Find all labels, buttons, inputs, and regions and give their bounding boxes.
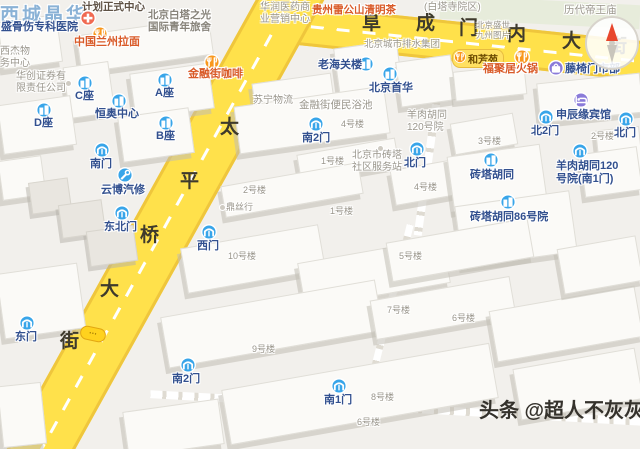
building-block <box>0 263 86 340</box>
map-label: 苏宁物流 <box>253 95 293 107</box>
gate-icon[interactable] <box>201 224 217 240</box>
building-icon[interactable] <box>36 102 52 118</box>
minor-poi-dot[interactable] <box>377 145 384 152</box>
poi-label: A座 <box>155 87 174 100</box>
building-block <box>221 343 499 445</box>
map-label: 北京城市排水集团 <box>364 39 440 50</box>
road-name-char: 大 <box>562 32 581 51</box>
poi-label: 恒奥中心 <box>95 108 139 121</box>
minor-poi-dot[interactable] <box>219 204 226 211</box>
poi-label: 羊肉胡同120号院(南1门) <box>556 160 618 185</box>
food-icon <box>454 51 466 63</box>
road-name-char: 阜 <box>362 14 381 33</box>
gate-icon[interactable] <box>180 357 196 373</box>
map-label: 华润医药商业营销中心 <box>260 2 310 26</box>
poi-label: 云博汽修 <box>101 184 145 197</box>
poi-label: 盛骨伤专科医院 <box>1 21 78 34</box>
poi-label: 南2门 <box>302 132 330 145</box>
road-name-char: 太 <box>220 118 239 137</box>
building-icon[interactable] <box>77 75 93 91</box>
building-block <box>0 382 47 448</box>
map-label: 10号楼 <box>228 251 256 262</box>
map-label: 7号楼 <box>387 305 410 316</box>
gate-icon[interactable] <box>94 142 110 158</box>
poi-label: 北京首华 <box>369 82 413 95</box>
watermark: 头条 @超人不灰灰1 <box>479 394 640 423</box>
gate-icon[interactable] <box>409 141 425 157</box>
poi-label: 北门 <box>404 157 426 170</box>
road-name-char: 成 <box>416 14 435 33</box>
poi-label: 砖塔胡同86号院 <box>470 211 548 224</box>
poi-label: 老海关楼 <box>318 59 362 72</box>
gate-icon[interactable] <box>331 378 347 394</box>
map-label: 6号楼 <box>452 313 475 324</box>
poi-label: 东门 <box>15 331 37 344</box>
map-label: 1号楼 <box>321 156 344 167</box>
building-icon[interactable] <box>500 194 516 210</box>
repair-icon[interactable] <box>117 167 133 183</box>
building-icon[interactable] <box>157 72 173 88</box>
gate-icon[interactable] <box>308 116 324 132</box>
poi-label: 北门 <box>614 127 636 140</box>
poi-label: 中国兰州拉面 <box>74 36 140 49</box>
road-name-char: 大 <box>100 280 119 299</box>
road-name-char: 平 <box>180 172 199 191</box>
map-label: 4号楼 <box>414 182 437 193</box>
map-label: 6号楼 <box>357 417 380 428</box>
map-label: 4号楼 <box>341 119 364 130</box>
hospital-icon[interactable] <box>80 10 96 26</box>
map-label: 9号楼 <box>252 344 275 355</box>
map-label: 贵州雷公山清明茶 <box>312 4 396 16</box>
map-canvas[interactable]: ··· 西城晶华 头条 @超人不灰灰1 太平桥大街阜成门内大街计划正式中心北京白… <box>0 0 640 449</box>
building-icon[interactable] <box>382 66 398 82</box>
road-name-char: 桥 <box>140 226 159 245</box>
store-icon[interactable] <box>548 60 564 76</box>
poi-label: 南2门 <box>172 373 200 386</box>
building-icon[interactable] <box>111 93 127 109</box>
minor-poi-dot[interactable] <box>65 80 72 87</box>
map-label: 北京白塔之光国际青年旅舍 <box>148 9 211 34</box>
map-label: 西杰物务中心 <box>0 46 30 70</box>
poi-label: C座 <box>75 90 94 103</box>
map-label: 1号楼 <box>330 206 353 217</box>
gate-icon[interactable] <box>572 143 588 159</box>
poi-label: D座 <box>34 117 53 130</box>
gate-icon[interactable] <box>19 315 35 331</box>
hotel-icon[interactable] <box>573 92 589 108</box>
map-label: (白塔寺院区) <box>424 2 481 14</box>
gate-icon[interactable] <box>114 205 130 221</box>
map-label: 2号楼 <box>591 131 614 142</box>
building-block <box>122 398 224 449</box>
poi-label: 西门 <box>197 240 219 253</box>
map-label: 金融街便民浴池 <box>299 99 373 111</box>
gate-icon[interactable] <box>538 109 554 125</box>
map-label: 3号楼 <box>478 136 501 147</box>
poi-label: 申辰缘宾馆 <box>556 109 611 122</box>
poi-label: B座 <box>156 130 175 143</box>
road-name-char: 街 <box>60 332 79 351</box>
map-label: 8号楼 <box>371 392 394 403</box>
map-label: 羊肉胡同120号院 <box>407 110 447 134</box>
poi-label: 金融街咖啡 <box>188 68 243 81</box>
building-icon[interactable] <box>158 115 174 131</box>
building-block <box>395 54 457 107</box>
map-label: 2号楼 <box>243 185 266 196</box>
poi-label: 北2门 <box>531 125 559 138</box>
compass-icon[interactable] <box>584 15 640 71</box>
poi-label: 南门 <box>90 158 112 171</box>
map-label: 北京市砖塔社区服务站 <box>352 150 402 174</box>
map-label: 北京盛世九州图片 <box>476 20 510 40</box>
gate-icon[interactable] <box>618 111 634 127</box>
poi-label: 南1门 <box>324 394 352 407</box>
map-label: 5号楼 <box>399 251 422 262</box>
poi-label: 东北门 <box>104 221 137 234</box>
map-label: 鼎丝行 <box>226 202 253 213</box>
poi-label: 福聚居火锅 <box>483 63 538 76</box>
building-icon[interactable] <box>483 152 499 168</box>
poi-label: 砖塔胡同 <box>470 169 514 182</box>
map-label: 华创证券有限责任公司 <box>16 71 66 95</box>
